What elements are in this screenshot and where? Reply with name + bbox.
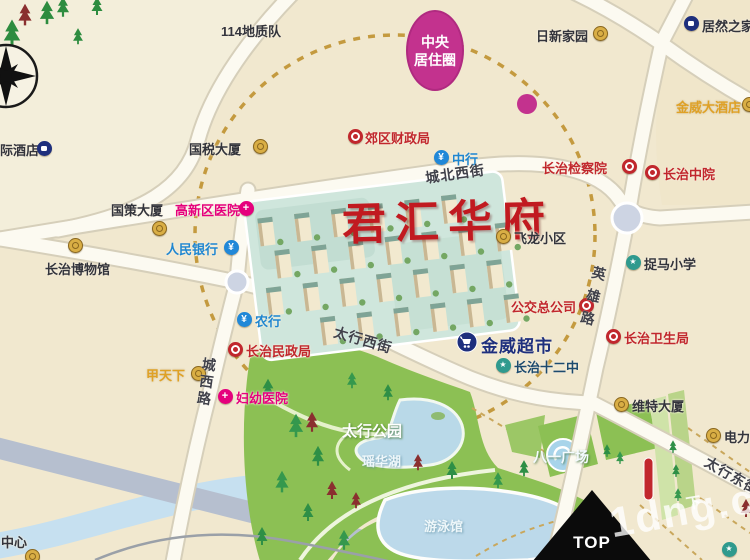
red-marker-icon-weisheng-bureau: [606, 329, 621, 344]
poi-label-jianchayuan: 长治检察院: [542, 158, 607, 177]
navy-marker-icon-intl-hotel: [37, 141, 52, 156]
poi-label-zhuoma-school: 捉马小学: [644, 254, 696, 273]
poi-label-center-partial: 中心: [1, 532, 27, 551]
roundabout-east: [612, 203, 642, 233]
gold-marker-icon-center-partial: [25, 549, 40, 560]
teal-marker-icon-zhuoma-school: [626, 255, 641, 270]
poi-label-feilong-block: 飞龙小区: [514, 228, 566, 247]
central-residential-circle-badge: 中央 居住圈: [406, 10, 464, 91]
top-marker-label: TOP: [566, 533, 618, 553]
blue-marker-icon-renmin-bank: [224, 240, 239, 255]
poi-label-minzheng-bureau: 长治民政局: [246, 341, 311, 360]
gold-marker-icon-dianli-block: [706, 428, 721, 443]
poi-label-weite-tower: 维特大厦: [632, 396, 684, 415]
poi-label-abc-bank: 农行: [255, 311, 281, 330]
poi-label-rixin-home: 日新家园: [536, 26, 588, 45]
poi-label-swim-hall: 游泳馆: [424, 516, 463, 535]
red-marker-icon-jianchayuan: [622, 159, 637, 174]
map-base-layer: [0, 0, 750, 560]
poi-label-juran-home: 居然之家: [702, 16, 750, 35]
poi-label-caizheng-bureau: 郊区财政局: [365, 128, 430, 147]
blue-marker-icon-abc-bank: [237, 312, 252, 327]
magenta-marker-icon-gaoxin-hospital: [239, 201, 254, 216]
red-marker-icon-zhongyuan-court: [645, 165, 660, 180]
poi-label-renmin-bank: 人民银行: [166, 239, 218, 258]
gold-marker-icon-guoshui-tower: [253, 139, 268, 154]
red-marker-icon-caizheng-bureau: [348, 129, 363, 144]
roundabout-west: [226, 271, 248, 293]
poi-label-guoce-tower: 国策大厦: [111, 200, 163, 219]
poi-label-zhongyuan-court: 长治中院: [663, 164, 715, 183]
gold-marker-icon-guoce-tower: [152, 221, 167, 236]
location-map: 中央 居住圈 君汇华府 际酒店114地质队日新家园居然之家金威大酒店国税大厦郊区…: [0, 0, 750, 560]
gold-marker-icon-jinwei-hotel: [742, 97, 750, 112]
magenta-marker-icon-fuyou-hospital: [218, 389, 233, 404]
gold-marker-icon-weite-tower: [614, 397, 629, 412]
teal-marker-icon-no12-school: [496, 358, 511, 373]
poi-label-dianli-block: 电力小区: [724, 427, 750, 446]
blue-marker-icon-boc-bank: [434, 150, 449, 165]
poi-label-jiatianxia: 甲天下: [146, 365, 185, 384]
poi-label-bus-company: 公交总公司: [511, 297, 576, 316]
gold-marker-icon-changzhi-museum: [68, 238, 83, 253]
circle-node-dot: [517, 94, 537, 114]
poi-label-guoshui-tower: 国税大厦: [189, 139, 241, 158]
poi-label-changzhi-museum: 长治博物馆: [45, 259, 110, 278]
teal-marker-icon-pool-poi-partial: [722, 542, 737, 557]
poi-label-gaoxin-hospital: 高新区医院: [175, 200, 240, 219]
poi-label-no12-school: 长治十二中: [514, 357, 579, 376]
poi-label-yaohua-lake: 瑶华湖: [362, 451, 401, 470]
poi-label-fuyou-hospital: 妇幼医院: [236, 388, 288, 407]
poi-label-bayi-square: 八一广场: [533, 447, 589, 467]
poi-label-taihang-park: 太行公园: [342, 420, 402, 441]
poi-label-jinwei-hotel: 金威大酒店: [676, 97, 741, 116]
badge-line2: 居住圈: [414, 51, 456, 69]
poi-label-geo-team-114: 114地质队: [221, 21, 281, 40]
badge-line1: 中央: [421, 33, 449, 51]
poi-label-weisheng-bureau: 长治卫生局: [624, 328, 689, 347]
shopping-cart-icon: [457, 332, 477, 352]
gold-marker-icon-feilong-block: [496, 229, 511, 244]
gold-marker-icon-rixin-home: [593, 26, 608, 41]
red-marker-icon-minzheng-bureau: [228, 342, 243, 357]
navy-marker-icon-juran-home: [684, 16, 699, 31]
poi-label-jinwei-market: 金威超市: [481, 332, 553, 357]
poi-label-intl-hotel: 际酒店: [0, 140, 39, 159]
